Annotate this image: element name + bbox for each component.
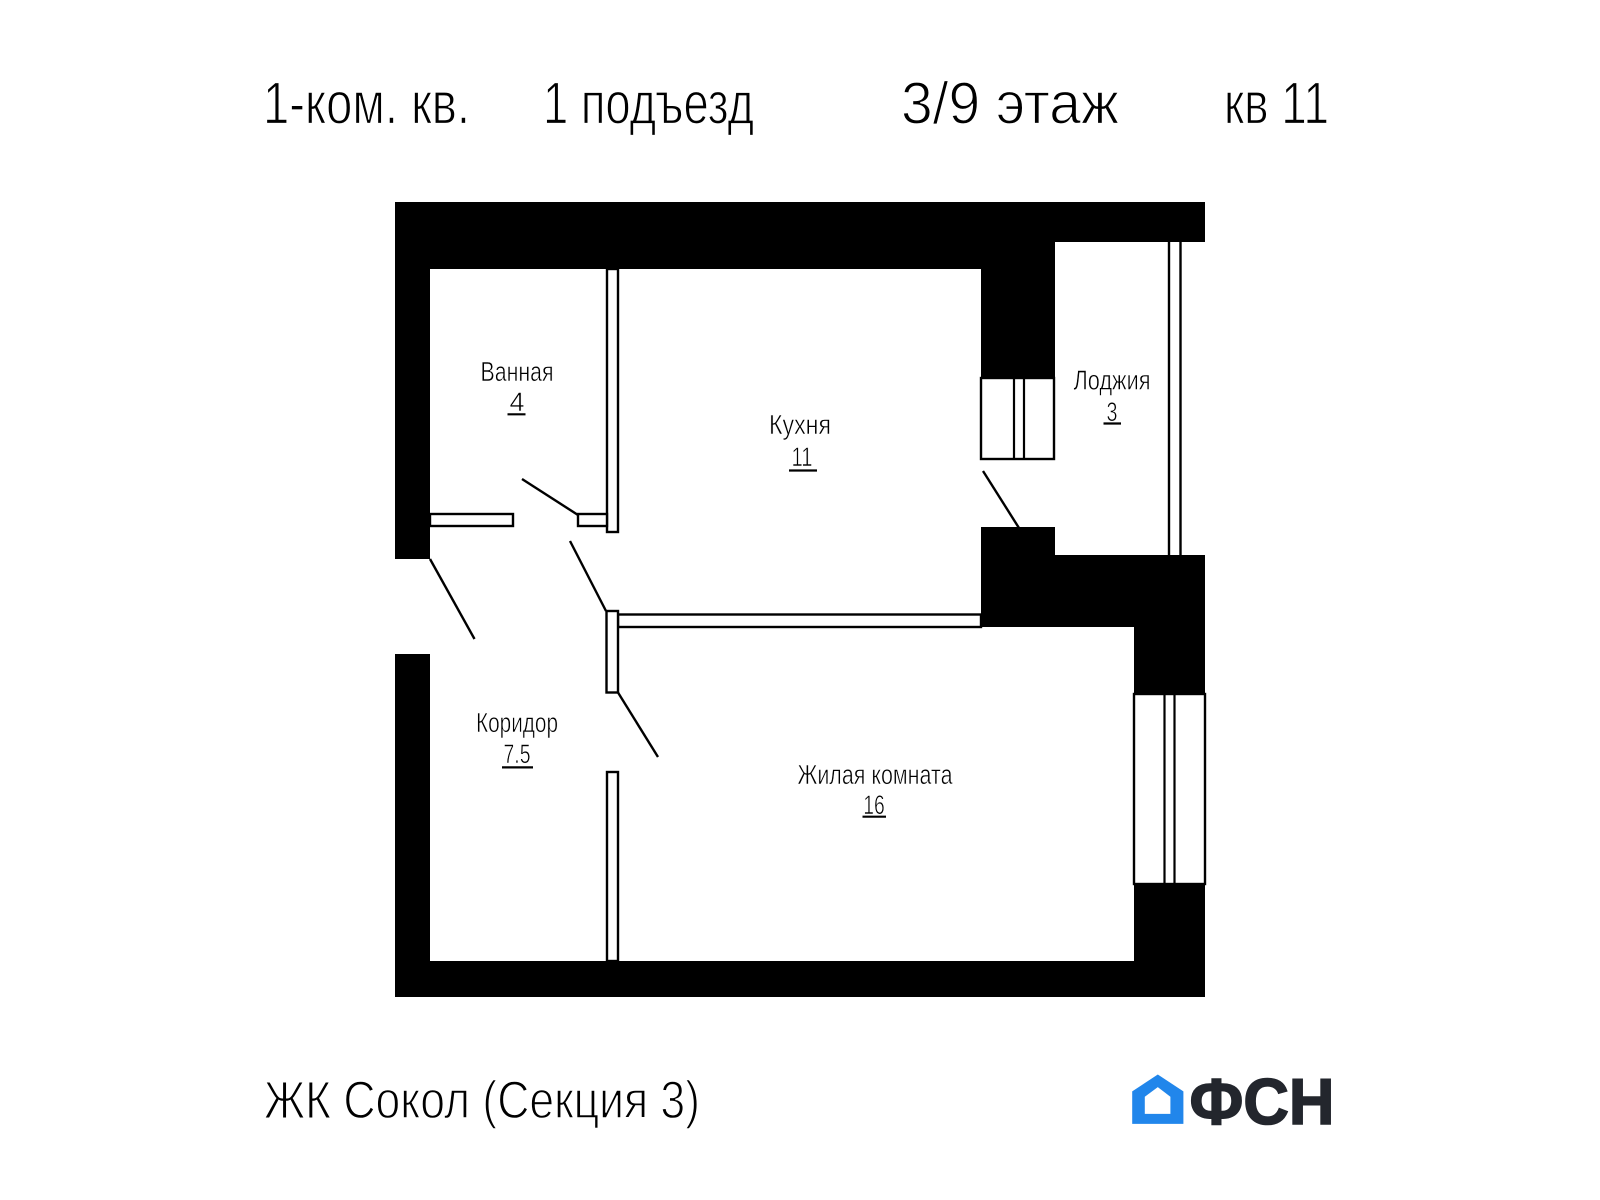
svg-text:Лоджия: Лоджия (1074, 365, 1151, 396)
svg-text:7.5: 7.5 (504, 739, 531, 769)
svg-text:кв 11: кв 11 (1224, 71, 1329, 137)
svg-text:ФСН: ФСН (1190, 1065, 1335, 1138)
svg-text:11: 11 (792, 442, 813, 472)
svg-text:Жилая комната: Жилая комната (798, 759, 953, 790)
svg-text:Ванная: Ванная (481, 356, 554, 387)
svg-text:ЖК Сокол (Секция 3): ЖК Сокол (Секция 3) (264, 1071, 700, 1130)
svg-text:4: 4 (509, 387, 524, 417)
svg-text:1-ком. кв.: 1-ком. кв. (263, 71, 470, 137)
svg-text:16: 16 (863, 790, 885, 820)
svg-text:Коридор: Коридор (476, 707, 558, 738)
svg-text:1 подъезд: 1 подъезд (543, 71, 754, 137)
svg-text:3/9 этаж: 3/9 этаж (901, 71, 1120, 137)
svg-text:Кухня: Кухня (769, 409, 831, 440)
